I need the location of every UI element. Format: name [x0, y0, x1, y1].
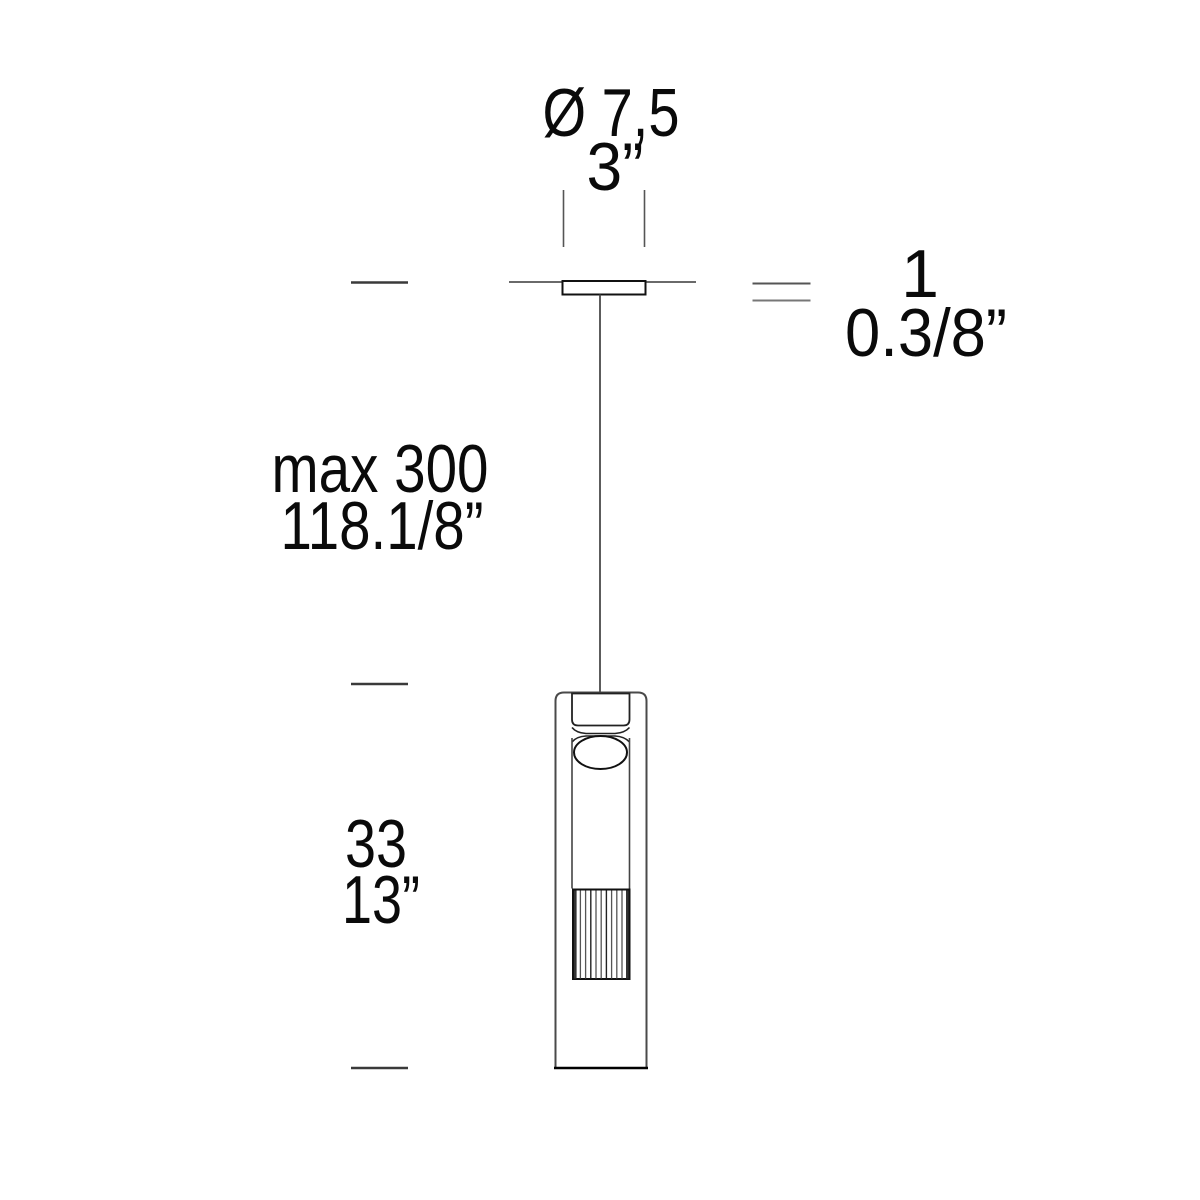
- dimension-ticks: [351, 283, 408, 1069]
- label-canopy-height-imperial: 0.3/8”: [845, 295, 1007, 371]
- lamp-body: [554, 693, 648, 1069]
- canopy-height-marks: [753, 284, 811, 301]
- lamp-socket: [572, 694, 630, 726]
- pendant-lamp-dimension-drawing: Ø 7,5 3” 1 0.3/8” max 300 118.1/8” 33 13…: [0, 0, 1200, 1200]
- label-suspension-length-imperial: 118.1/8”: [281, 488, 484, 564]
- lamp-bulb: [574, 736, 627, 769]
- technical-drawing-page: Ø 7,5 3” 1 0.3/8” max 300 118.1/8” 33 13…: [0, 0, 1200, 1200]
- label-canopy-diameter-imperial: 3”: [587, 129, 644, 205]
- lamp-diffuser-ribs: [573, 890, 630, 980]
- ceiling-canopy: [563, 281, 646, 295]
- label-fixture-height-imperial: 13”: [342, 862, 420, 938]
